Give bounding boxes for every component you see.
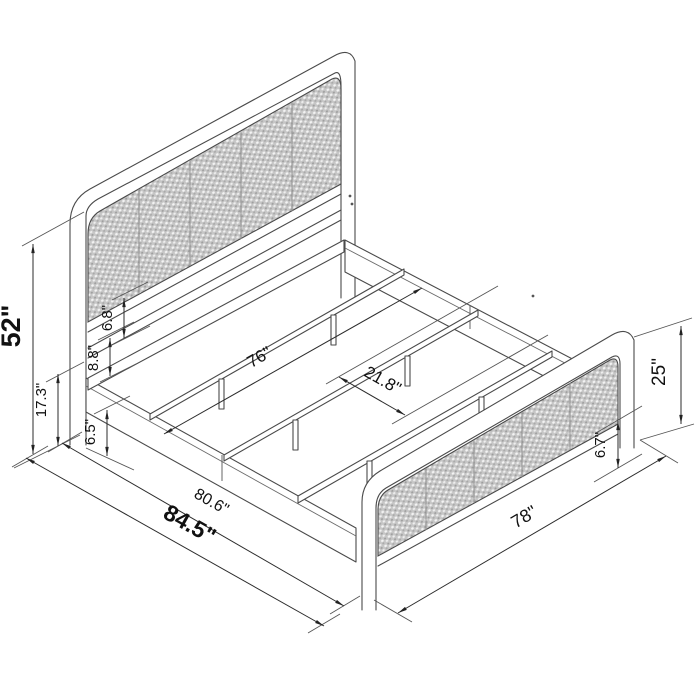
bracket-bolt xyxy=(351,203,354,206)
dim-overall-length: 84.5" xyxy=(12,446,340,633)
slat-leg xyxy=(293,420,298,450)
bracket-bolt xyxy=(349,195,352,198)
diagram-canvas: 52" 17.3" 6.5" 8.8" 6.8" 76" xyxy=(0,0,700,700)
footboard-bolt xyxy=(532,295,535,298)
slat-leg xyxy=(405,356,410,386)
dim-label-footboard-clearance: 6.7" xyxy=(592,432,609,458)
dim-label-footboard-height: 25" xyxy=(649,358,670,386)
dim-label-rail-band-height: 6.5" xyxy=(82,419,99,445)
dim-label-bar-gap: 8.8" xyxy=(85,345,102,371)
dim-footboard-height: 25" xyxy=(634,318,694,440)
dim-label-headboard-leg-height: 17.3" xyxy=(33,383,50,418)
dim-label-overall-width: 78" xyxy=(507,502,540,533)
slat-leg xyxy=(331,315,336,345)
headboard xyxy=(70,52,355,445)
slat-leg xyxy=(219,379,224,409)
dim-label-panel-gap: 6.8" xyxy=(99,305,116,331)
bed-frame-dimension-diagram: 52" 17.3" 6.5" 8.8" 6.8" 76" xyxy=(0,0,700,700)
dim-label-overall-height: 52" xyxy=(0,305,26,348)
